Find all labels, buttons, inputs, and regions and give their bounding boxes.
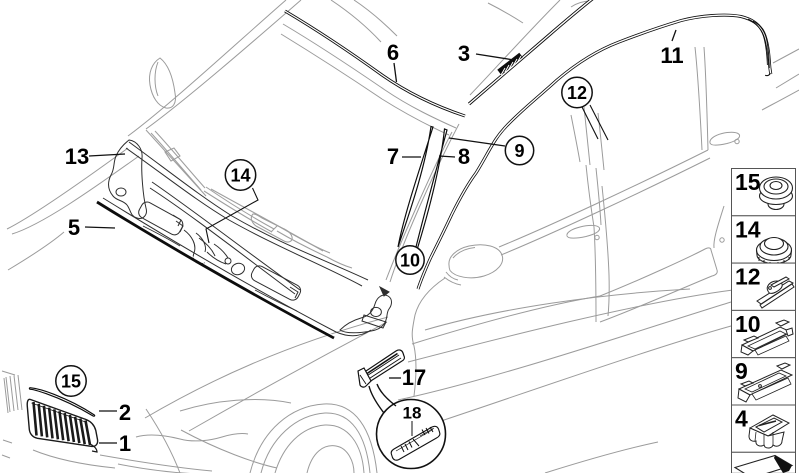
svg-text:9: 9 bbox=[514, 141, 524, 161]
svg-text:18: 18 bbox=[403, 404, 422, 423]
svg-text:7: 7 bbox=[387, 144, 399, 169]
svg-text:3: 3 bbox=[458, 41, 470, 66]
svg-text:12: 12 bbox=[735, 264, 761, 290]
svg-text:9: 9 bbox=[735, 358, 748, 384]
svg-text:10: 10 bbox=[735, 311, 761, 337]
svg-text:11: 11 bbox=[660, 43, 683, 68]
svg-text:14: 14 bbox=[230, 166, 250, 186]
svg-text:17: 17 bbox=[402, 365, 426, 390]
svg-text:1: 1 bbox=[119, 431, 131, 456]
svg-text:8: 8 bbox=[458, 144, 470, 169]
svg-text:2: 2 bbox=[119, 400, 131, 425]
svg-text:15: 15 bbox=[61, 372, 81, 392]
svg-text:10: 10 bbox=[400, 251, 420, 271]
svg-text:12: 12 bbox=[567, 83, 587, 103]
svg-text:5: 5 bbox=[68, 215, 80, 240]
svg-text:15: 15 bbox=[735, 169, 761, 195]
svg-text:6: 6 bbox=[387, 40, 399, 65]
svg-text:13: 13 bbox=[65, 144, 89, 169]
svg-text:4: 4 bbox=[735, 406, 748, 432]
svg-text:14: 14 bbox=[735, 216, 761, 242]
